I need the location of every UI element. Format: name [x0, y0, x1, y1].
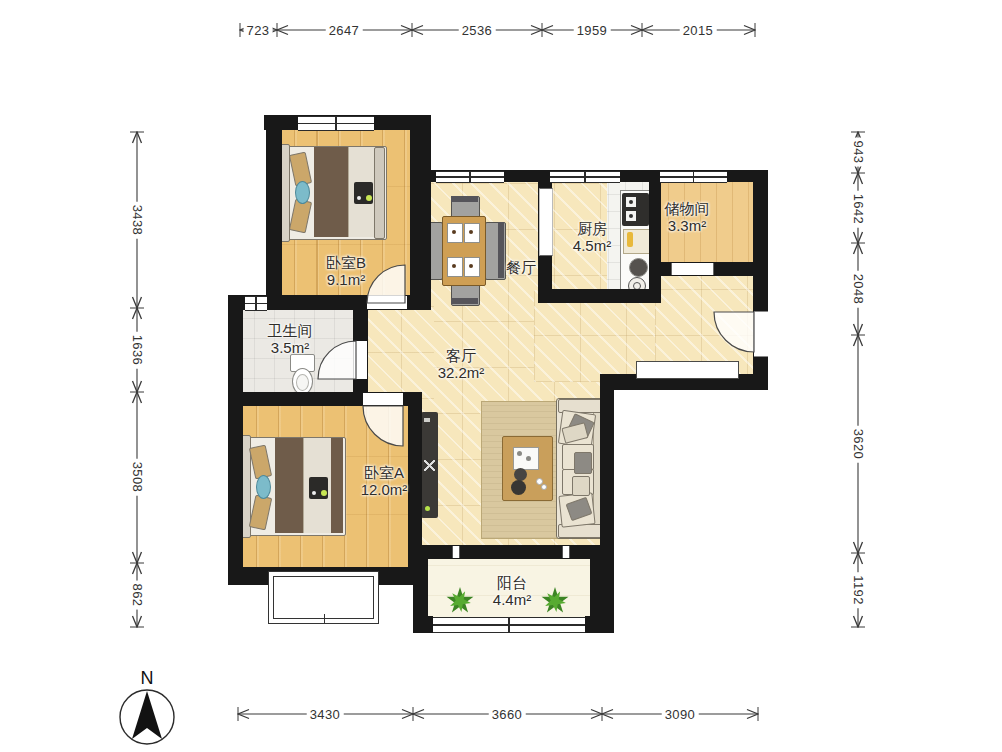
dim-left-2: 1636: [130, 332, 145, 369]
bathroom-door-arc: [318, 341, 356, 379]
dim-right-5: 1192: [851, 572, 866, 608]
dim-left-1: 3438: [130, 202, 145, 239]
dim-top-4: 1959: [574, 23, 611, 38]
living-label: 客厅32.2m²: [438, 347, 485, 381]
north-label: N: [141, 668, 154, 689]
dim-right-2: 1642: [851, 191, 866, 228]
bathroom-label: 卫生间3.5m²: [268, 322, 313, 356]
dim-right-1: 943: [851, 138, 866, 167]
dim-right-3: 2048: [851, 271, 866, 308]
storage-label: 储物间3.3m²: [665, 200, 710, 234]
kitchen-label: 厨房4.5m²: [573, 220, 611, 254]
dimension-ticks: [130, 23, 865, 721]
dim-left-4: 862: [130, 581, 145, 610]
dim-top-3: 2536: [459, 23, 496, 38]
balcony-label: 阳台4.4m²: [493, 574, 531, 608]
entry-door-arc: [714, 312, 754, 352]
bedroom-a-door-arc: [363, 406, 403, 446]
door-arcs: [318, 265, 754, 446]
overlay-drawing: [0, 0, 1002, 752]
dim-bottom-1: 3430: [307, 707, 344, 722]
dim-bottom-3: 3090: [662, 707, 699, 722]
dim-top-2: 2647: [326, 23, 363, 38]
floorplan-canvas: 卧室B9.1m² 厨房4.5m² 储物间3.3m² 餐厅 卫生间3.5m² 客厅…: [0, 0, 1002, 752]
dimension-lines: [137, 30, 858, 714]
bedroom-a-label: 卧室A12.0m²: [361, 464, 408, 498]
dim-top-5: 2015: [680, 23, 717, 38]
dining-label: 餐厅: [506, 259, 536, 276]
bedroom-b-label: 卧室B9.1m²: [326, 254, 366, 288]
dim-top-1: 723: [244, 23, 273, 38]
dim-right-4: 3620: [851, 426, 866, 463]
dim-left-3: 3508: [130, 459, 145, 496]
north-arrow-icon: [120, 690, 174, 744]
dim-bottom-2: 3660: [489, 707, 526, 722]
bedroom-b-door-arc: [367, 265, 405, 303]
